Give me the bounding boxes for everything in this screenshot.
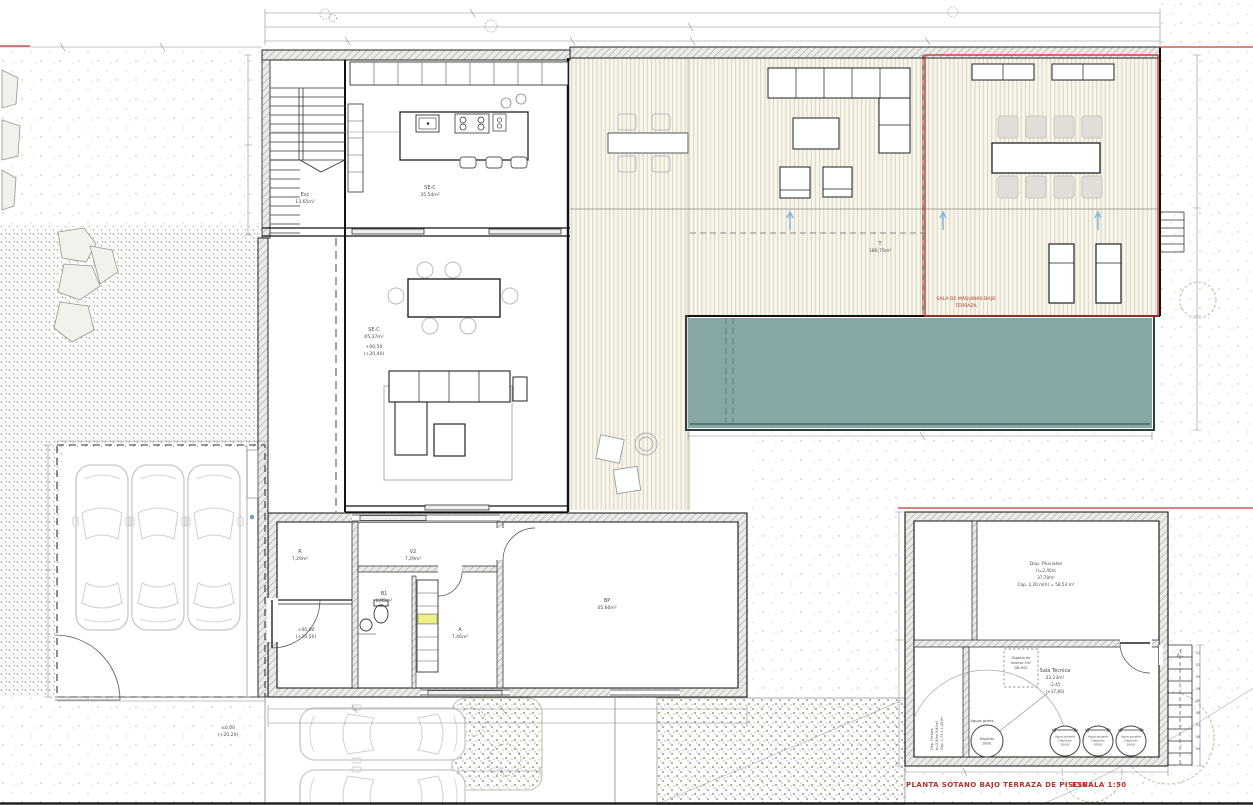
reserva-3: DB-HS2	[1014, 666, 1027, 670]
room-label-a: A	[458, 627, 462, 633]
dep-pluviales-2: h=2,40m	[1036, 568, 1056, 573]
round-stool	[516, 94, 526, 104]
level-living-rel: +00,50	[365, 344, 382, 350]
room-label-v2: V2	[410, 549, 417, 555]
sofa-chaise	[395, 402, 427, 455]
tank-grises-1: Depósito	[980, 737, 994, 741]
main-staircase	[270, 88, 345, 233]
room-label-r: R	[298, 549, 302, 555]
dep-fecales-2: h=2,40m 5,80m²	[935, 720, 939, 750]
sliding-door	[489, 229, 561, 234]
room-area-a: 7,46m²	[452, 634, 469, 640]
bottom-wing	[267, 513, 747, 697]
floor-plan-drawing: Esc 13,65m² SE-C 35,54m² SE-C 65,37m² +0…	[0, 0, 1253, 805]
sliding-door	[352, 229, 424, 234]
window	[428, 691, 502, 696]
reserva-2: reserva 1m²	[1011, 661, 1032, 665]
sliding-door	[360, 516, 426, 521]
tank-potable-1c: 1000L	[1060, 743, 1070, 747]
terrain-lower-left	[0, 697, 260, 805]
dining-table	[408, 279, 500, 317]
room-label-bp: BP	[604, 598, 610, 604]
outdoor-sofa-return	[879, 98, 910, 153]
machine-room-label-2: TERRAZA	[954, 303, 977, 309]
tank-potable-2c: 1000L	[1093, 743, 1103, 747]
closet-shelves	[417, 580, 438, 672]
machine-room-label-1: SALA DE MÁQUINAS BAJO	[937, 295, 996, 302]
pool-water	[688, 318, 1152, 428]
outdoor-coffee-table	[793, 118, 839, 149]
side-table	[513, 377, 527, 401]
level-entry-rel: +00,00	[297, 627, 314, 633]
round-stool	[501, 98, 511, 108]
coffee-table	[434, 424, 465, 456]
step-number: 01	[1196, 651, 1200, 655]
step-number: 04	[1196, 687, 1200, 691]
gate-swing	[55, 635, 120, 700]
dep-fecales-1: Dep. Fecales	[930, 728, 934, 750]
room-label-esc: Esc	[301, 192, 310, 198]
outdoor-sofa	[768, 68, 910, 98]
deck-table	[608, 133, 688, 153]
planted-square	[657, 698, 905, 805]
dep-pluviales-3: 37,70m²	[1037, 575, 1055, 580]
level-entry-abs: (+20,50)	[296, 634, 317, 640]
dining-set	[388, 262, 518, 334]
tank-grises-2: 1000L	[982, 742, 992, 746]
highlighted-shelf	[418, 615, 437, 624]
sala-tecnica-2: 22,23m²	[1046, 675, 1065, 681]
door-opening	[496, 528, 504, 560]
swimming-pool	[686, 316, 1154, 430]
level-site-abs: (+20,20)	[218, 732, 239, 738]
room-area-terrace: 180,75m²	[869, 248, 892, 254]
sheet-title: PLANTA SÓTANO BAJO TERRAZA DE PISCINA	[906, 780, 1094, 789]
small-plants	[320, 7, 958, 32]
room-label-living: SE-C	[368, 327, 380, 333]
dep-pluviales-4: Cap. 2,20 m(h) = 58,53 m³	[1018, 582, 1075, 587]
sala-tecnica-4: (+17,85)	[1046, 689, 1065, 694]
aguas-grises-label: Aguas grises	[971, 719, 994, 723]
step-number: 02	[1196, 663, 1200, 667]
level-site-rel: ±0,00	[221, 725, 235, 731]
room-area-b1: 6,85m²	[376, 598, 393, 604]
sheet-scale: ESCALA 1:50	[1072, 781, 1127, 789]
kitchen-tall-cabinets	[350, 62, 568, 85]
room-label-b1: B1	[381, 591, 388, 597]
sala-tecnica-3: -2,45	[1050, 682, 1061, 687]
west-wall	[258, 238, 268, 697]
bar-stools	[460, 157, 527, 168]
outdoor-armchair	[780, 167, 810, 198]
room-area-r: 7,29m²	[292, 556, 309, 562]
outdoor-armchair	[823, 167, 852, 197]
kitchen	[272, 62, 568, 192]
step-number: 08	[1196, 735, 1200, 739]
door-opening	[438, 565, 462, 573]
sofa	[389, 371, 510, 402]
room-area-living: 65,37m²	[364, 334, 384, 340]
dep-pluviales-1: Dep. Pluviales	[1030, 561, 1063, 567]
step-number: 06	[1196, 711, 1200, 715]
sliding-door	[425, 505, 489, 510]
step-number: 05	[1196, 699, 1200, 703]
stair-step-numbers: 01 02 03 04 05 06 07 08 09	[1196, 651, 1200, 751]
room-label-kitchen: SE-C	[424, 185, 436, 191]
sala-tecnica-1: Sala Técnica	[1040, 667, 1071, 674]
terrain-upper-right	[1160, 0, 1253, 420]
level-living-abs: (+20,40)	[364, 351, 385, 357]
dep-fecales-3: Cap. 1,73 x 1,43 m³	[940, 716, 944, 750]
room-area-kitchen: 35,54m²	[420, 192, 440, 198]
terrain-upper-left	[0, 50, 260, 228]
planter-column	[247, 450, 258, 498]
utility-marker	[250, 515, 254, 519]
step-number: 03	[1196, 675, 1200, 679]
living-wing	[336, 238, 568, 512]
room-area-v2: 7,29m²	[405, 556, 422, 562]
floor-plan-sheet: Esc 13,65m² SE-C 35,54m² SE-C 65,37m² +0…	[0, 0, 1253, 805]
step-number: 09	[1196, 747, 1200, 751]
room-area-esc: 13,65m²	[295, 199, 315, 205]
sofa-group	[384, 371, 527, 480]
step-number: 07	[1196, 723, 1200, 727]
reserva-1: Espacio de	[1012, 656, 1030, 660]
tank-potable-3c: 1000L	[1126, 743, 1136, 747]
outdoor-dining-table	[992, 143, 1100, 173]
kitchen-side-cabinet	[348, 104, 363, 192]
room-area-bp: 45,60m²	[597, 605, 617, 611]
